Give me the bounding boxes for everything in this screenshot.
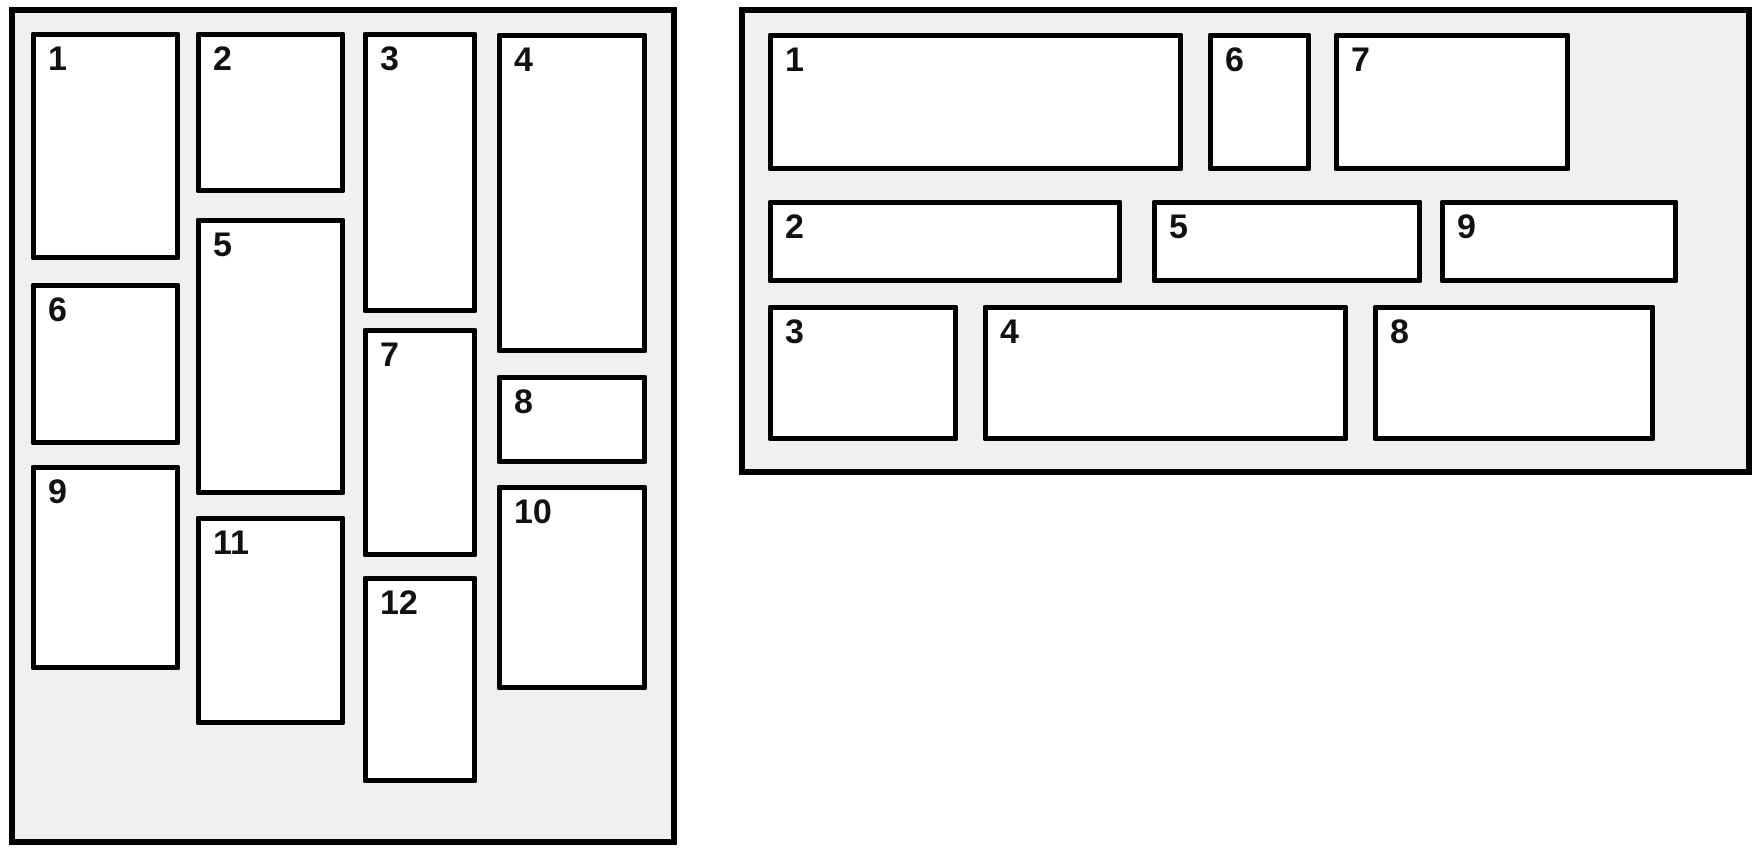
rows-card-9: 9 bbox=[1440, 200, 1678, 283]
masonry-card-9: 9 bbox=[31, 465, 180, 670]
card-number-label: 10 bbox=[502, 490, 642, 529]
masonry-card-8: 8 bbox=[497, 375, 647, 464]
card-number-label: 3 bbox=[773, 310, 953, 349]
masonry-card-5: 5 bbox=[196, 218, 345, 495]
card-number-label: 5 bbox=[1157, 205, 1417, 244]
masonry-card-1: 1 bbox=[31, 32, 180, 260]
rows-card-2: 2 bbox=[768, 200, 1122, 283]
card-number-label: 1 bbox=[36, 37, 175, 76]
rows-card-4: 4 bbox=[983, 305, 1348, 441]
card-number-label: 8 bbox=[1378, 310, 1650, 349]
rows-panel: 1 2 3 4 5 6 7 8 9 bbox=[739, 7, 1752, 475]
masonry-card-4: 4 bbox=[497, 33, 647, 353]
rows-card-1: 1 bbox=[768, 33, 1183, 171]
card-number-label: 11 bbox=[201, 521, 340, 560]
card-number-label: 7 bbox=[368, 333, 472, 372]
card-number-label: 6 bbox=[1213, 38, 1306, 77]
masonry-card-11: 11 bbox=[196, 516, 345, 725]
card-number-label: 6 bbox=[36, 288, 175, 327]
card-number-label: 1 bbox=[773, 38, 1178, 77]
card-number-label: 3 bbox=[368, 37, 472, 76]
card-number-label: 12 bbox=[368, 581, 472, 620]
rows-card-6: 6 bbox=[1208, 33, 1311, 171]
card-number-label: 2 bbox=[201, 37, 340, 76]
card-number-label: 5 bbox=[201, 223, 340, 262]
rows-card-7: 7 bbox=[1334, 33, 1570, 171]
masonry-card-6: 6 bbox=[31, 283, 180, 445]
rows-card-8: 8 bbox=[1373, 305, 1655, 441]
masonry-card-2: 2 bbox=[196, 32, 345, 193]
card-number-label: 8 bbox=[502, 380, 642, 419]
rows-card-5: 5 bbox=[1152, 200, 1422, 283]
card-number-label: 2 bbox=[773, 205, 1117, 244]
rows-card-3: 3 bbox=[768, 305, 958, 441]
card-number-label: 7 bbox=[1339, 38, 1565, 77]
masonry-card-3: 3 bbox=[363, 32, 477, 313]
masonry-card-7: 7 bbox=[363, 328, 477, 557]
masonry-panel: 1 2 3 4 5 6 7 8 9 10 11 12 bbox=[9, 7, 677, 845]
layout-comparison-diagram: 1 2 3 4 5 6 7 8 9 10 11 12 1 2 3 4 5 6 7… bbox=[0, 0, 1755, 852]
masonry-card-10: 10 bbox=[497, 485, 647, 690]
card-number-label: 9 bbox=[1445, 205, 1673, 244]
card-number-label: 9 bbox=[36, 470, 175, 509]
card-number-label: 4 bbox=[502, 38, 642, 77]
masonry-card-12: 12 bbox=[363, 576, 477, 783]
card-number-label: 4 bbox=[988, 310, 1343, 349]
